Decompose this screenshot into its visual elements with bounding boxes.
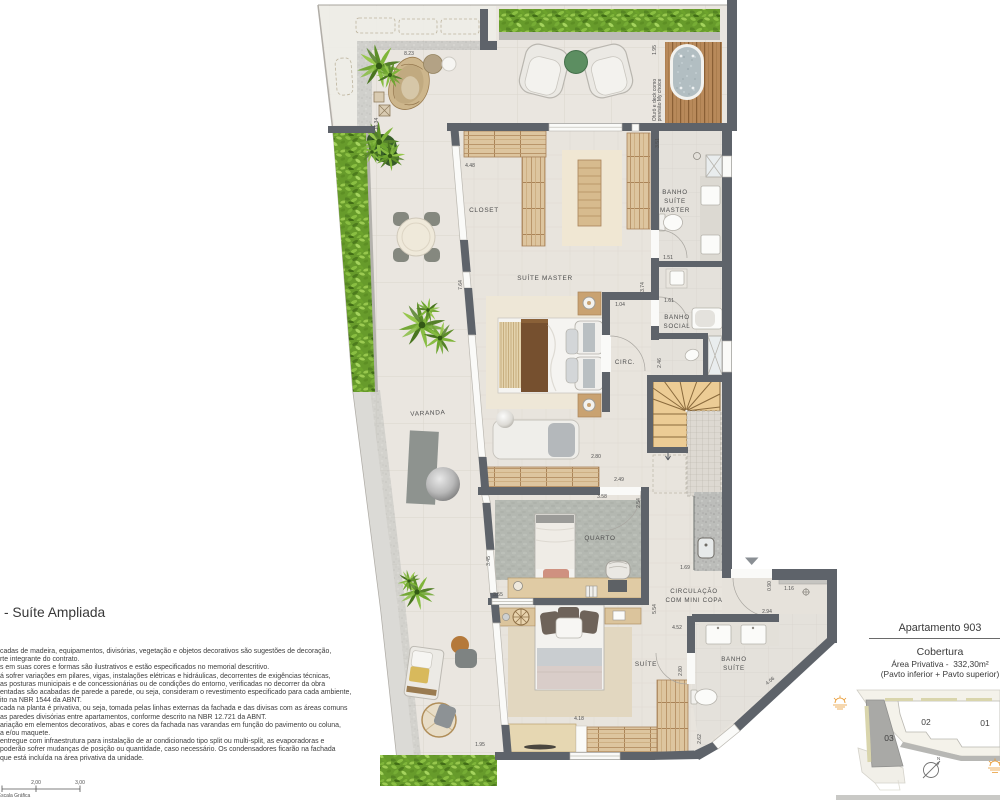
svg-text:SUÍTE: SUÍTE — [635, 659, 657, 668]
svg-text:3.55: 3.55 — [493, 592, 503, 598]
svg-text:2.62: 2.62 — [697, 734, 703, 744]
svg-text:2.54: 2.54 — [636, 498, 642, 508]
svg-text:3.74: 3.74 — [640, 282, 646, 292]
svg-text:BANHO: BANHO — [721, 656, 747, 663]
svg-text:MASTER: MASTER — [660, 207, 690, 214]
svg-text:4.52: 4.52 — [672, 625, 682, 631]
svg-text:7.64: 7.64 — [458, 280, 464, 290]
svg-text:SUÍTE: SUÍTE — [723, 665, 745, 672]
svg-text:3.51: 3.51 — [655, 138, 661, 148]
svg-text:CIRCULAÇÃO: CIRCULAÇÃO — [670, 588, 718, 595]
svg-text:BANHO: BANHO — [662, 189, 688, 196]
svg-text:SUÍTE: SUÍTE — [664, 198, 686, 205]
svg-text:2.80: 2.80 — [678, 666, 684, 676]
svg-text:N: N — [937, 756, 940, 761]
svg-text:CIRC.: CIRC. — [615, 359, 635, 366]
svg-text:CLOSET: CLOSET — [469, 207, 499, 214]
svg-text:16.34: 16.34 — [374, 118, 380, 131]
svg-text:5.54: 5.54 — [652, 604, 658, 614]
svg-text:1.61: 1.61 — [664, 298, 674, 304]
svg-text:1.16: 1.16 — [784, 586, 794, 592]
svg-text:4.48: 4.48 — [465, 163, 475, 169]
svg-text:1.95: 1.95 — [475, 742, 485, 748]
svg-text:QUARTO: QUARTO — [584, 535, 615, 542]
svg-text:2.94: 2.94 — [762, 609, 772, 615]
svg-text:2.80: 2.80 — [591, 454, 601, 460]
svg-text:Escala Gráfica: Escala Gráfica — [0, 793, 30, 799]
svg-text:8.23: 8.23 — [404, 51, 414, 57]
svg-text:1.69: 1.69 — [680, 565, 690, 571]
svg-text:previsão My choice: previsão My choice — [657, 78, 663, 121]
svg-text:2.46: 2.46 — [657, 358, 663, 368]
svg-text:4.18: 4.18 — [574, 716, 584, 722]
svg-text:1.51: 1.51 — [663, 255, 673, 261]
svg-text:SUÍTE MASTER: SUÍTE MASTER — [517, 273, 573, 282]
svg-text:1.04: 1.04 — [615, 302, 625, 308]
svg-text:02: 02 — [921, 717, 931, 727]
svg-text:SOCIAL: SOCIAL — [664, 323, 691, 330]
svg-text:3,00: 3,00 — [75, 780, 85, 786]
svg-text:BANHO: BANHO — [664, 314, 690, 321]
svg-text:01: 01 — [980, 718, 990, 728]
svg-text:3.45: 3.45 — [486, 556, 492, 566]
svg-text:3.58: 3.58 — [597, 494, 607, 500]
svg-text:2.49: 2.49 — [614, 477, 624, 483]
svg-text:2,00: 2,00 — [31, 780, 41, 786]
svg-text:1.95: 1.95 — [652, 45, 658, 55]
svg-text:COM MINI COPA: COM MINI COPA — [665, 597, 722, 604]
svg-text:03: 03 — [884, 733, 894, 743]
svg-text:0.90: 0.90 — [767, 581, 773, 591]
